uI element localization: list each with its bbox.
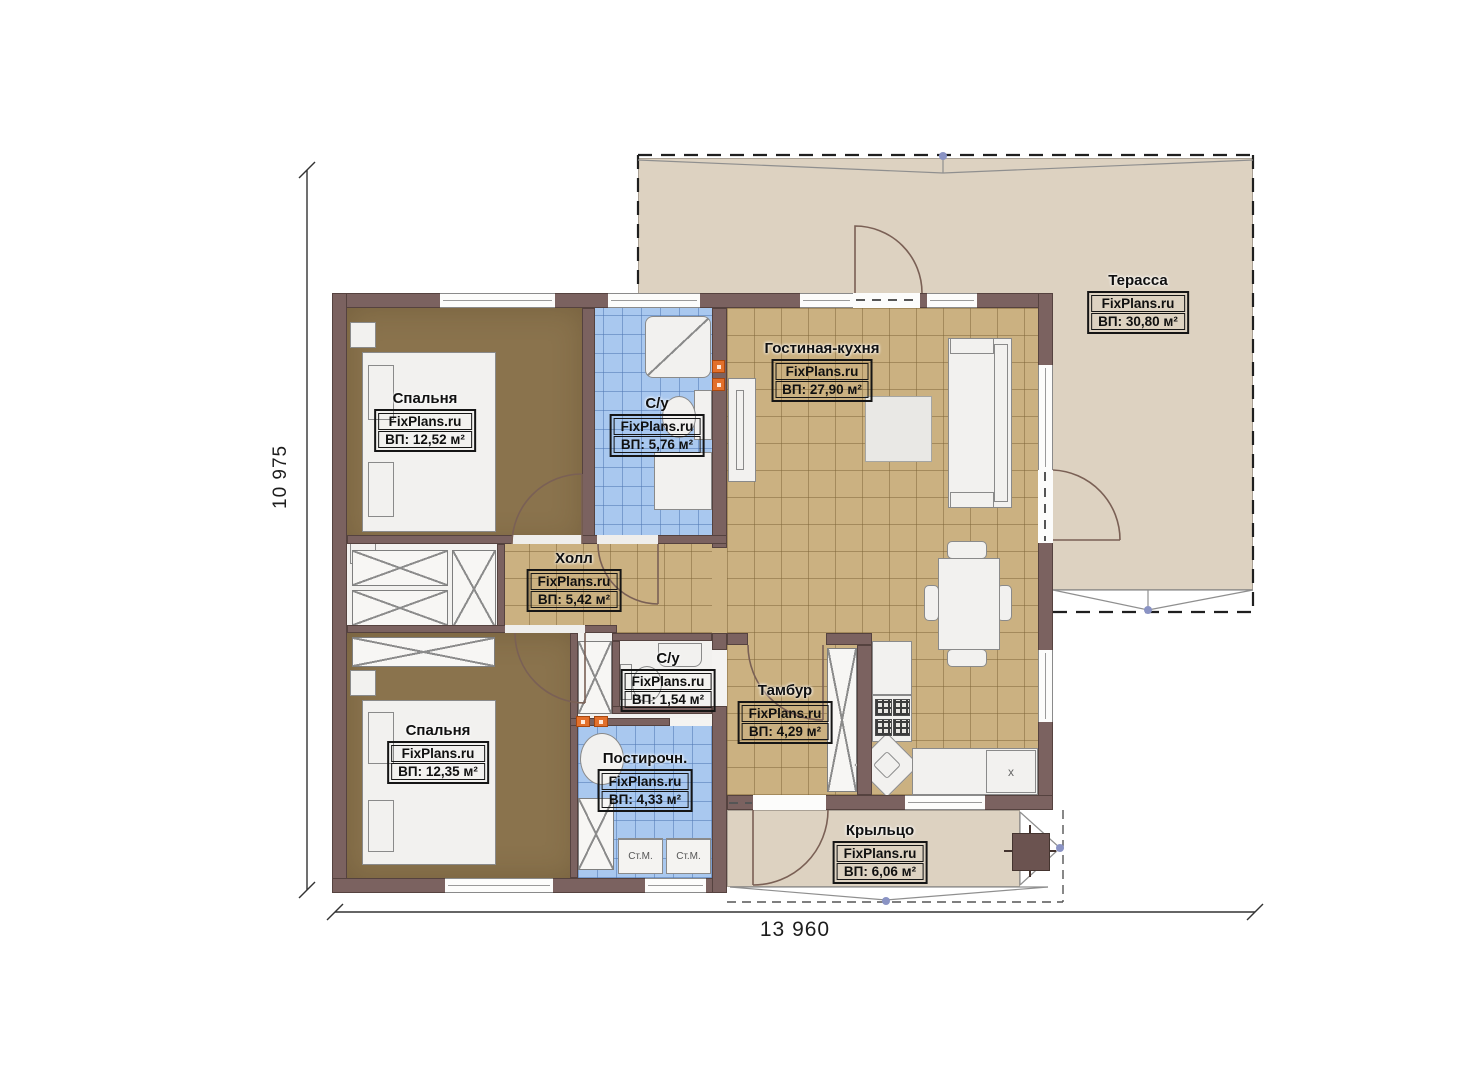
appliance-x-label: x xyxy=(1008,765,1014,779)
room-label-bath1: С/у FixPlans.ru ВП: 5,76 м² xyxy=(610,395,705,457)
brand-label: FixPlans.ru xyxy=(391,745,485,762)
room-label-porch: Крыльцо FixPlans.ru ВП: 6,06 м² xyxy=(833,822,928,884)
room-label-hall: Холл FixPlans.ru ВП: 5,42 м² xyxy=(527,550,622,612)
brand-label: FixPlans.ru xyxy=(625,673,712,690)
room-label-living: Гостиная-кухня FixPlans.ru ВП: 27,90 м² xyxy=(765,340,880,402)
wall-laundrycol-tambour-b xyxy=(712,706,727,893)
brand-label: FixPlans.ru xyxy=(742,705,829,722)
stove-burner-icon xyxy=(893,719,910,736)
room-area: ВП: 30,80 м² xyxy=(1091,313,1185,330)
wall-bath1-living xyxy=(712,308,727,548)
wall-bath2-left xyxy=(612,641,620,714)
room-area: ВП: 4,33 м² xyxy=(602,791,689,808)
room-name: Тамбур xyxy=(738,682,833,699)
room-info-box: FixPlans.ru ВП: 12,35 м² xyxy=(387,741,489,784)
pillow-symbol xyxy=(368,800,394,852)
window-laundry-bottom xyxy=(645,878,706,893)
nightstand-symbol xyxy=(350,670,376,696)
room-name: Крыльцо xyxy=(833,822,928,839)
room-name: Гостиная-кухня xyxy=(765,340,880,357)
room-info-box: FixPlans.ru ВП: 5,76 м² xyxy=(610,414,705,457)
room-name: Холл xyxy=(527,550,622,567)
room-area: ВП: 5,42 м² xyxy=(531,591,618,608)
dimension-width: 13 960 xyxy=(740,918,850,942)
window-living-right-lower xyxy=(1038,650,1053,722)
room-name: Спальня xyxy=(387,722,489,739)
window-living-top-right xyxy=(927,293,977,308)
wall-bath2-top xyxy=(612,633,712,641)
door-opening-laundry xyxy=(670,718,712,726)
room-info-box: FixPlans.ru ВП: 1,54 м² xyxy=(621,669,716,712)
door-opening-terrace-top xyxy=(853,293,920,308)
brand-label: FixPlans.ru xyxy=(602,773,689,790)
room-info-box: FixPlans.ru ВП: 12,52 м² xyxy=(374,409,476,452)
brand-label: FixPlans.ru xyxy=(775,363,869,380)
room-area: ВП: 4,29 м² xyxy=(742,723,829,740)
tv-symbol xyxy=(736,390,744,470)
chair-symbol xyxy=(947,541,987,559)
window-bath1-top xyxy=(608,293,700,308)
room-area: ВП: 6,06 м² xyxy=(837,863,924,880)
stove-burner-icon xyxy=(875,719,892,736)
washer-label: Ст.М. xyxy=(676,851,701,862)
porch-column-symbol xyxy=(1012,833,1050,871)
wall-bedroom2-laundry xyxy=(570,633,578,878)
dining-table-symbol xyxy=(938,558,1000,650)
window-bedroom1-top xyxy=(440,293,555,308)
door-opening-porch xyxy=(753,795,826,810)
door-opening-bedroom1 xyxy=(512,535,582,544)
sofa-armrest-symbol xyxy=(950,338,994,354)
room-label-bedroom1: Спальня FixPlans.ru ВП: 12,52 м² xyxy=(374,390,476,452)
window-kitchen-bottom xyxy=(905,795,985,810)
sofa-armrest-symbol xyxy=(950,492,994,508)
counter-appliance-symbol: x xyxy=(986,750,1036,793)
stove-burner-icon xyxy=(893,699,910,716)
room-info-box: FixPlans.ru ВП: 27,90 м² xyxy=(771,359,873,402)
room-area: ВП: 27,90 м² xyxy=(775,381,869,398)
shower-symbol xyxy=(645,316,711,378)
washer-label: Ст.М. xyxy=(628,851,653,862)
vent-marker-icon xyxy=(712,360,725,373)
wall-left xyxy=(332,293,347,893)
room-label-tambour: Тамбур FixPlans.ru ВП: 4,29 м² xyxy=(738,682,833,744)
room-info-box: FixPlans.ru ВП: 4,33 м² xyxy=(598,769,693,812)
window-bedroom2-bottom xyxy=(445,878,553,893)
washbasin-symbol xyxy=(654,452,712,510)
vent-marker-icon xyxy=(712,378,725,391)
chair-symbol xyxy=(924,585,939,621)
room-area: ВП: 1,54 м² xyxy=(625,691,712,708)
room-label-terrace: Терасса FixPlans.ru ВП: 30,80 м² xyxy=(1087,272,1189,334)
room-name: Терасса xyxy=(1087,272,1189,289)
door-opening-bedroom2 xyxy=(505,625,585,633)
rug-symbol xyxy=(865,396,932,462)
room-area: ВП: 12,52 м² xyxy=(378,431,472,448)
window-living-top-left xyxy=(800,293,853,308)
brand-label: FixPlans.ru xyxy=(378,413,472,430)
room-info-box: FixPlans.ru ВП: 5,42 м² xyxy=(527,569,622,612)
room-info-box: FixPlans.ru ВП: 6,06 м² xyxy=(833,841,928,884)
floor-plan-canvas: Ст.М. Ст.М. x xyxy=(0,0,1473,1080)
washing-machine-symbol: Ст.М. xyxy=(666,838,711,874)
door-opening-terrace-right xyxy=(1038,470,1053,543)
chair-symbol xyxy=(947,649,987,667)
room-label-bedroom2: Спальня FixPlans.ru ВП: 12,35 м² xyxy=(387,722,489,784)
window-living-right-upper xyxy=(1038,365,1053,470)
vent-marker-icon xyxy=(576,716,590,727)
room-label-laundry: Постирочн. FixPlans.ru ВП: 4,33 м² xyxy=(598,750,693,812)
wardrobe-symbol xyxy=(452,550,496,628)
door-opening-bath1 xyxy=(597,535,658,544)
brand-label: FixPlans.ru xyxy=(837,845,924,862)
wardrobe-symbol xyxy=(352,590,448,626)
room-name: Постирочн. xyxy=(598,750,693,767)
sofa-back-symbol xyxy=(994,344,1008,502)
kitchen-cabinet-symbol xyxy=(872,641,912,695)
wall-bedroom1-bath1 xyxy=(582,308,595,544)
washing-machine-symbol: Ст.М. xyxy=(618,838,663,874)
opening-hall-living xyxy=(712,548,727,633)
room-label-bath2: С/у FixPlans.ru ВП: 1,54 м² xyxy=(621,650,716,712)
room-info-box: FixPlans.ru ВП: 4,29 м² xyxy=(738,701,833,744)
brand-label: FixPlans.ru xyxy=(1091,295,1185,312)
wardrobe-symbol xyxy=(352,637,495,667)
room-name: Спальня xyxy=(374,390,476,407)
nightstand-symbol xyxy=(350,322,376,348)
room-area: ВП: 12,35 м² xyxy=(391,763,485,780)
vent-marker-icon xyxy=(594,716,608,727)
wall-laundrycol-tambour-a xyxy=(712,633,727,650)
pillow-symbol xyxy=(368,462,394,517)
room-name: С/у xyxy=(610,395,705,412)
room-area: ВП: 5,76 м² xyxy=(614,436,701,453)
stove-burner-icon xyxy=(875,699,892,716)
room-name: С/у xyxy=(621,650,716,667)
wall-tambour-kitchen xyxy=(857,645,872,795)
wardrobe-symbol xyxy=(352,550,448,586)
wall-niche-stub xyxy=(497,544,505,633)
brand-label: FixPlans.ru xyxy=(614,418,701,435)
wall-tambour-top-a xyxy=(727,633,748,645)
closet-symbol xyxy=(578,641,612,714)
dimension-height: 10 975 xyxy=(270,483,292,509)
room-info-box: FixPlans.ru ВП: 30,80 м² xyxy=(1087,291,1189,334)
wall-tambour-top-b xyxy=(826,633,872,645)
brand-label: FixPlans.ru xyxy=(531,573,618,590)
